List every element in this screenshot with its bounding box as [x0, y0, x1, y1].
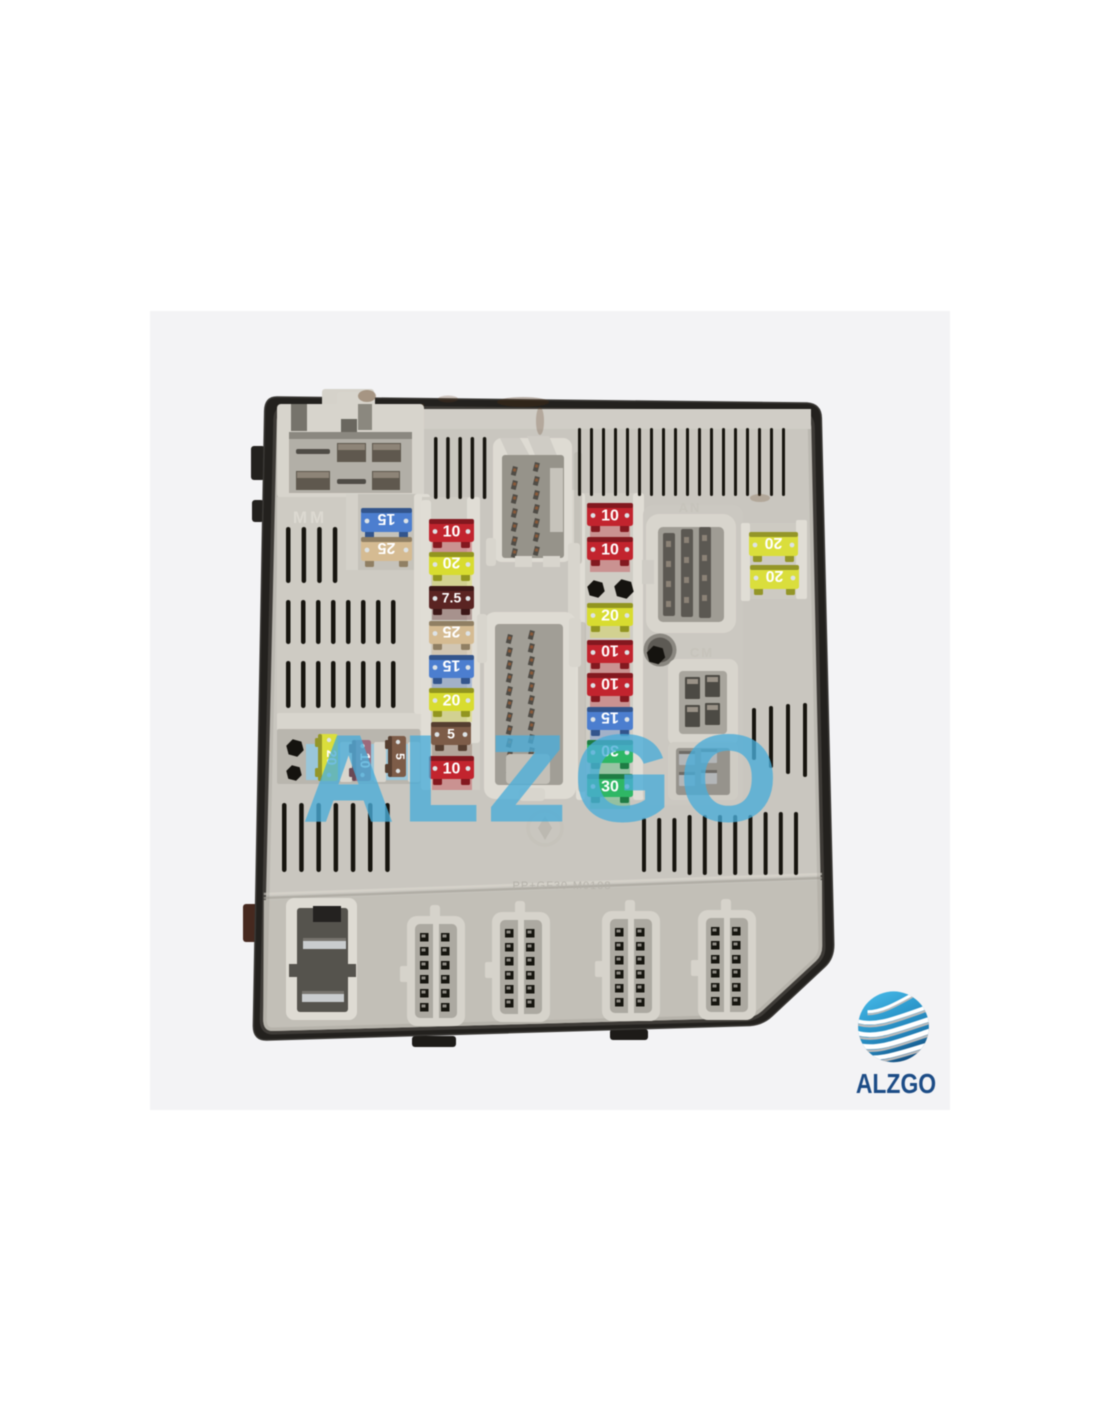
svg-text:CM: CM — [690, 645, 714, 660]
svg-text:ALZGO: ALZGO — [856, 1069, 936, 1100]
svg-text:ALZGO: ALZGO — [304, 710, 787, 846]
svg-text:MM: MM — [293, 508, 327, 527]
svg-text:10: 10 — [601, 675, 619, 692]
svg-text:20: 20 — [443, 554, 461, 571]
svg-text:10: 10 — [601, 507, 619, 524]
svg-text:25: 25 — [378, 539, 396, 556]
svg-text:PP+GF30-M0108: PP+GF30-M0108 — [513, 880, 612, 892]
svg-text:10: 10 — [601, 541, 619, 558]
svg-text:20: 20 — [765, 534, 783, 551]
svg-text:10: 10 — [601, 642, 619, 659]
svg-text:20: 20 — [601, 607, 619, 624]
svg-text:25: 25 — [443, 623, 461, 640]
svg-text:15: 15 — [378, 510, 396, 527]
svg-text:7.5: 7.5 — [442, 590, 462, 606]
svg-text:15: 15 — [443, 657, 461, 674]
svg-text:AN: AN — [679, 500, 702, 515]
svg-text:20: 20 — [766, 567, 784, 584]
svg-text:10: 10 — [443, 523, 461, 540]
svg-text:20: 20 — [443, 692, 461, 709]
